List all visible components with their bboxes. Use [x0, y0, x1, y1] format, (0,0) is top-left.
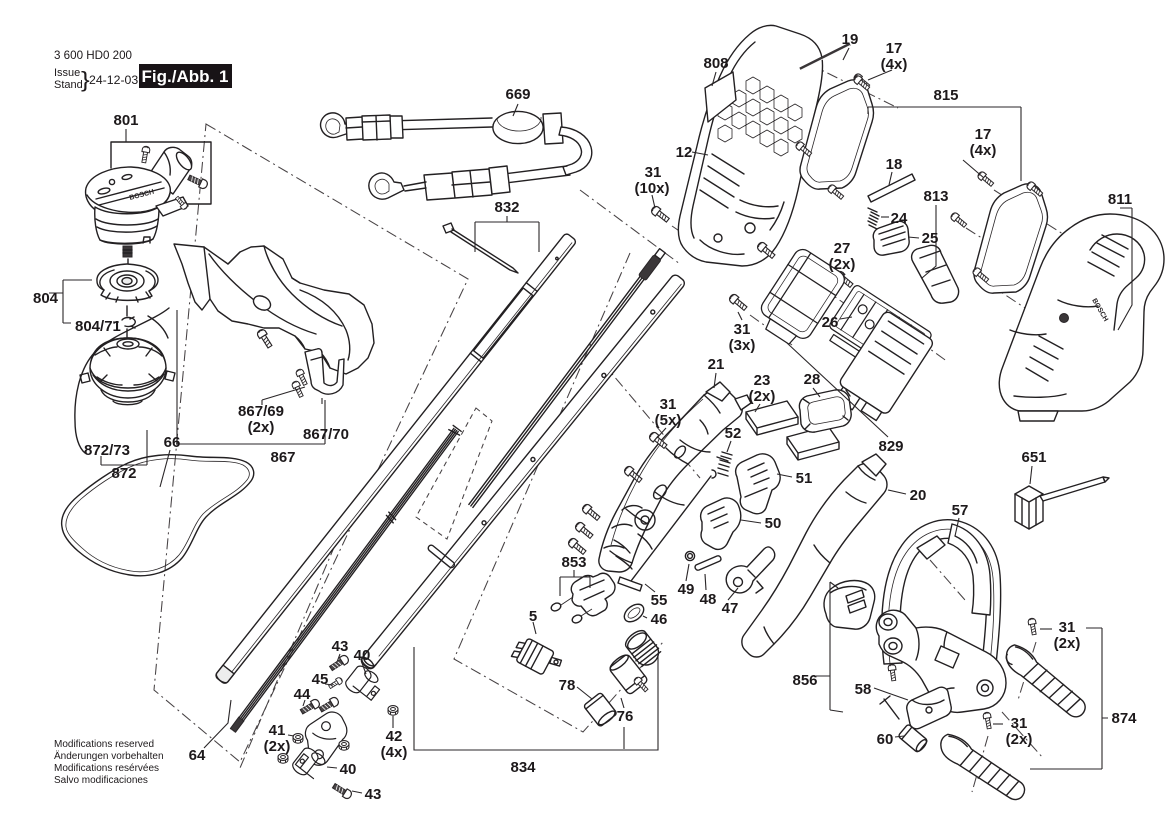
- svg-text:813: 813: [923, 188, 948, 205]
- svg-text:49: 49: [678, 581, 695, 598]
- svg-text:(2x): (2x): [264, 738, 291, 755]
- svg-text:867/70: 867/70: [303, 426, 349, 443]
- svg-text:856: 856: [792, 672, 817, 689]
- svg-text:76: 76: [617, 708, 634, 725]
- svg-text:60: 60: [877, 731, 894, 748]
- svg-text:(3x): (3x): [729, 337, 756, 354]
- svg-text:867/69: 867/69: [238, 403, 284, 420]
- svg-text:Modifications resérvées: Modifications resérvées: [54, 763, 159, 774]
- svg-text:31: 31: [645, 164, 662, 181]
- svg-text:804/71: 804/71: [75, 318, 121, 335]
- svg-text:48: 48: [700, 591, 717, 608]
- svg-text:801: 801: [113, 112, 138, 129]
- svg-text:(2x): (2x): [1006, 731, 1033, 748]
- svg-text:Salvo modificaciones: Salvo modificaciones: [54, 775, 148, 786]
- svg-text:(2x): (2x): [248, 419, 275, 436]
- svg-text:18: 18: [886, 156, 903, 173]
- svg-text:17: 17: [886, 40, 903, 57]
- svg-text:52: 52: [725, 425, 742, 442]
- svg-text:651: 651: [1021, 449, 1046, 466]
- svg-text:24-12-03: 24-12-03: [89, 73, 138, 87]
- svg-text:64: 64: [189, 747, 206, 764]
- svg-text:31: 31: [734, 321, 751, 338]
- svg-text:5: 5: [529, 608, 537, 625]
- svg-text:804: 804: [33, 290, 59, 307]
- svg-text:23: 23: [754, 372, 771, 389]
- svg-text:Modifications reserved: Modifications reserved: [54, 739, 154, 750]
- svg-text:27: 27: [834, 240, 851, 257]
- svg-text:57: 57: [952, 502, 969, 519]
- svg-text:17: 17: [975, 126, 992, 143]
- svg-text:45: 45: [312, 671, 329, 688]
- svg-text:78: 78: [559, 677, 576, 694]
- svg-text:669: 669: [505, 86, 530, 103]
- svg-text:20: 20: [910, 487, 927, 504]
- svg-text:51: 51: [796, 470, 813, 487]
- svg-text:43: 43: [365, 786, 382, 803]
- svg-text:21: 21: [708, 356, 725, 373]
- svg-text:42: 42: [386, 728, 403, 745]
- svg-text:815: 815: [933, 87, 958, 104]
- svg-text:(4x): (4x): [970, 142, 997, 159]
- svg-text:874: 874: [1111, 710, 1137, 727]
- svg-text:46: 46: [651, 611, 668, 628]
- svg-text:25: 25: [922, 230, 939, 247]
- svg-text:47: 47: [722, 600, 739, 617]
- svg-text:Issue: Issue: [54, 67, 80, 79]
- svg-text:40: 40: [354, 647, 371, 664]
- svg-text:867: 867: [270, 449, 295, 466]
- svg-text:58: 58: [855, 681, 872, 698]
- svg-text:811: 811: [1108, 191, 1132, 208]
- svg-text:853: 853: [561, 554, 586, 571]
- svg-text:43: 43: [332, 638, 349, 655]
- svg-text:40: 40: [340, 761, 357, 778]
- svg-text:26: 26: [822, 314, 839, 331]
- svg-text:808: 808: [703, 55, 728, 72]
- svg-text:31: 31: [1059, 619, 1076, 636]
- svg-text:834: 834: [510, 759, 536, 776]
- svg-text:28: 28: [804, 371, 821, 388]
- svg-text:12: 12: [676, 144, 693, 161]
- svg-text:50: 50: [765, 515, 782, 532]
- svg-text:(5x): (5x): [655, 412, 682, 429]
- svg-text:(4x): (4x): [381, 744, 408, 761]
- svg-text:832: 832: [494, 199, 519, 216]
- svg-text:872: 872: [111, 465, 136, 482]
- svg-text:19: 19: [842, 31, 859, 48]
- svg-text:829: 829: [878, 438, 903, 455]
- svg-text:66: 66: [164, 434, 181, 451]
- svg-text:872/73: 872/73: [84, 442, 130, 459]
- svg-text:Fig./Abb. 1: Fig./Abb. 1: [142, 67, 229, 86]
- svg-text:(2x): (2x): [829, 256, 856, 273]
- svg-text:31: 31: [1011, 715, 1028, 732]
- svg-text:31: 31: [660, 396, 677, 413]
- svg-text:(2x): (2x): [749, 388, 776, 405]
- svg-text:Stand: Stand: [54, 79, 83, 91]
- svg-text:Änderungen vorbehalten: Änderungen vorbehalten: [54, 750, 164, 762]
- svg-text:(2x): (2x): [1054, 635, 1081, 652]
- svg-text:3 600 HD0 200: 3 600 HD0 200: [54, 49, 132, 62]
- svg-text:55: 55: [651, 592, 668, 609]
- svg-text:24: 24: [891, 210, 908, 227]
- svg-text:(10x): (10x): [634, 180, 669, 197]
- svg-text:44: 44: [294, 686, 311, 703]
- svg-text:(4x): (4x): [881, 56, 908, 73]
- svg-text:41: 41: [269, 722, 286, 739]
